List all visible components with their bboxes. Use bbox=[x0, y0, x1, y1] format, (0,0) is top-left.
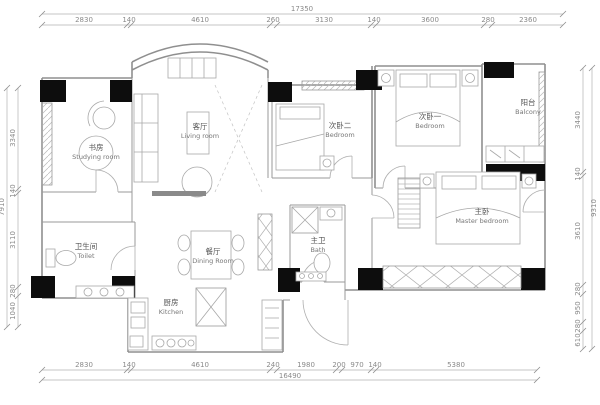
dim-label: 970 bbox=[350, 361, 363, 369]
dim-total-bottom: 16490 bbox=[279, 372, 301, 380]
furniture-bedroom1 bbox=[378, 70, 478, 146]
tv-icon bbox=[152, 191, 206, 196]
dim-label: 2830 bbox=[75, 16, 93, 24]
room-label-toilet-zh: 卫生间 bbox=[75, 241, 98, 251]
dimension-chain-bottom: 16490 2830 140 4610 240 1980 200 970 140… bbox=[39, 361, 540, 383]
room-label-studying-zh: 书房 bbox=[89, 142, 104, 152]
dim-label: 4610 bbox=[191, 361, 209, 369]
kitchen-counter-icon bbox=[262, 300, 282, 350]
nightstand-icon bbox=[522, 174, 536, 188]
dim-label: 140 bbox=[122, 16, 135, 24]
room-label-living-en: Living room bbox=[181, 132, 219, 140]
dim-label: 140 bbox=[368, 361, 381, 369]
room-label-studying-en: Studying room bbox=[72, 153, 120, 161]
chair-icon bbox=[232, 235, 244, 251]
room-label-bedroom2-en: Bedroom bbox=[325, 131, 354, 139]
dim-label: 3130 bbox=[315, 16, 333, 24]
dim-label: 950 bbox=[574, 301, 582, 314]
room-label-balcony-zh: 阳台 bbox=[521, 97, 536, 107]
hall-cabinet-icon bbox=[258, 214, 272, 270]
room-label-master-en: Master bedroom bbox=[455, 217, 508, 225]
room-label-bedroom1-en: Bedroom bbox=[415, 122, 444, 130]
sink-icon bbox=[131, 317, 145, 328]
column bbox=[40, 80, 66, 102]
dimension-chain-right: 9310 3440 140 3610 280 950 280 610 bbox=[574, 65, 598, 352]
dim-label: 3340 bbox=[9, 129, 17, 147]
dim-label: 4610 bbox=[191, 16, 209, 24]
dim-label: 2830 bbox=[75, 361, 93, 369]
pillow-icon bbox=[400, 74, 427, 87]
dim-label: 280 bbox=[574, 282, 582, 295]
column bbox=[110, 80, 132, 102]
dim-label: 140 bbox=[9, 184, 17, 197]
column bbox=[484, 62, 514, 78]
room-label-bath-zh: 主卫 bbox=[311, 235, 326, 245]
dim-label: 280 bbox=[9, 284, 17, 297]
room-label-dining-en: Dining Room bbox=[192, 257, 234, 265]
room-label-dining-zh: 餐厅 bbox=[206, 247, 221, 256]
room-label-kitchen-zh: 厨房 bbox=[164, 297, 179, 307]
room-label-bedroom1-zh: 次卧一 bbox=[419, 111, 442, 121]
dim-label: 3610 bbox=[574, 222, 582, 240]
dim-label: 2360 bbox=[519, 16, 537, 24]
sink-icon bbox=[131, 302, 145, 313]
dim-label: 280 bbox=[481, 16, 494, 24]
dim-label: 280 bbox=[574, 319, 582, 332]
furniture-master-bedroom bbox=[383, 172, 536, 288]
furniture-dining bbox=[178, 214, 272, 279]
window-bedroom2 bbox=[302, 81, 364, 90]
dimension-chain-top: 17350 2830 140 4610 260 3130 140 3600 28… bbox=[39, 5, 566, 28]
room-label-toilet-en: Toilet bbox=[76, 252, 94, 260]
nightstand-icon bbox=[320, 156, 334, 170]
nightstand-icon bbox=[420, 174, 434, 188]
column bbox=[358, 268, 383, 290]
room-label-living-zh: 客厅 bbox=[193, 121, 208, 131]
dim-total-top: 17350 bbox=[291, 5, 313, 13]
furniture-balcony bbox=[486, 146, 544, 162]
room-label-master-zh: 主卧 bbox=[475, 206, 490, 216]
dim-label: 1040 bbox=[9, 302, 17, 320]
dim-label: 140 bbox=[122, 361, 135, 369]
toilet-icon bbox=[56, 251, 76, 266]
dim-label: 3440 bbox=[574, 111, 582, 129]
sofa-icon bbox=[134, 94, 158, 182]
wardrobe-icon bbox=[383, 266, 521, 288]
dim-total-left: 7910 bbox=[0, 198, 6, 216]
dim-label: 1980 bbox=[297, 361, 315, 369]
dresser-icon bbox=[398, 178, 420, 228]
dim-total-right: 9310 bbox=[590, 199, 598, 217]
floor-plan-drawing: 17350 2830 140 4610 260 3130 140 3600 28… bbox=[0, 0, 600, 405]
window-study bbox=[42, 103, 52, 185]
floor-plan-canvas: 17350 2830 140 4610 260 3130 140 3600 28… bbox=[0, 0, 600, 405]
nightstand-icon bbox=[462, 70, 478, 86]
armchair-icon bbox=[93, 107, 115, 129]
dim-label: 200 bbox=[332, 361, 345, 369]
pillow-icon bbox=[442, 176, 476, 189]
chair-icon bbox=[178, 259, 190, 275]
chair-icon bbox=[178, 235, 190, 251]
dim-label: 140 bbox=[574, 167, 582, 180]
room-label-kitchen-en: Kitchen bbox=[159, 308, 183, 316]
furniture-kitchen bbox=[128, 288, 282, 350]
column bbox=[31, 276, 55, 298]
pillow-icon bbox=[280, 107, 320, 119]
room-label-balcony-en: Balcony bbox=[515, 108, 541, 116]
dim-label: 260 bbox=[266, 16, 279, 24]
pillow-icon bbox=[430, 74, 456, 87]
chair-icon bbox=[232, 259, 244, 275]
dimension-chain-left: 7910 3340 140 3110 280 1040 bbox=[0, 85, 21, 330]
dim-label: 3600 bbox=[421, 16, 439, 24]
column bbox=[521, 268, 545, 290]
dim-label: 140 bbox=[367, 16, 380, 24]
dim-label: 610 bbox=[574, 333, 582, 346]
pillow-icon bbox=[482, 176, 516, 189]
dim-label: 240 bbox=[266, 361, 279, 369]
nightstand-icon bbox=[378, 70, 394, 86]
dim-label: 3110 bbox=[9, 231, 17, 249]
room-label-bath-en: Bath bbox=[310, 246, 325, 254]
stove-icon bbox=[152, 336, 196, 350]
entry-door bbox=[303, 300, 348, 345]
column bbox=[268, 82, 292, 102]
dim-label: 5380 bbox=[447, 361, 465, 369]
ceiling-dashed-lines bbox=[215, 85, 262, 192]
room-label-bedroom2-zh: 次卧二 bbox=[329, 120, 352, 130]
toilet-icon bbox=[314, 253, 330, 273]
toilet-tank-icon bbox=[46, 249, 55, 267]
